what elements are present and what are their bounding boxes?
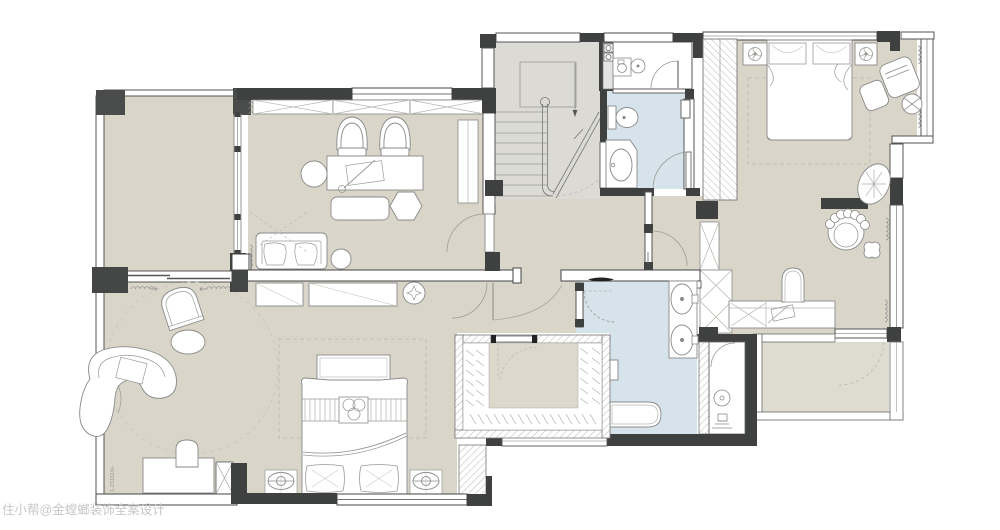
svg-text:住小帮@金螳螂装饰全案设计: 住小帮@金螳螂装饰全案设计 <box>2 502 165 517</box>
svg-text:1-151616+: 1-151616+ <box>110 466 116 492</box>
